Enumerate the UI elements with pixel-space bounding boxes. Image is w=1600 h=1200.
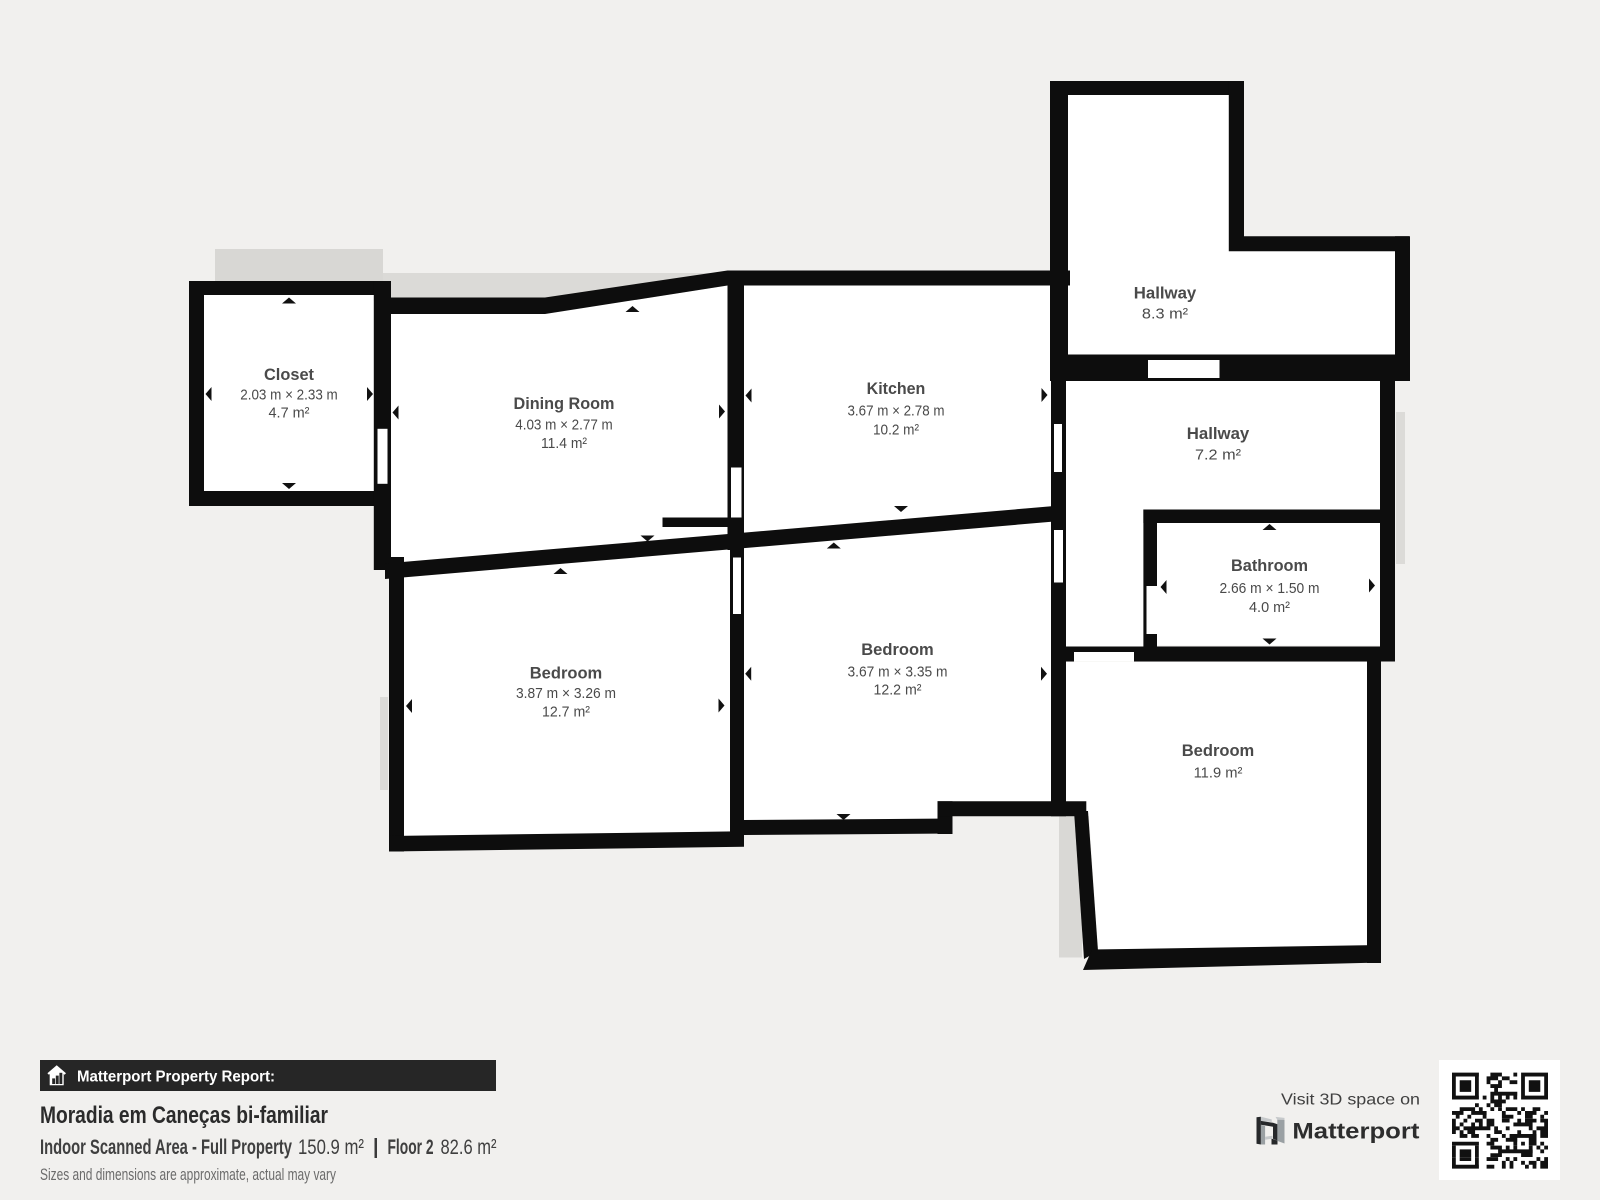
svg-text:Hallway: Hallway bbox=[1187, 424, 1250, 443]
svg-text:Hallway: Hallway bbox=[1134, 284, 1197, 303]
svg-text:11.4 m²: 11.4 m² bbox=[541, 435, 587, 452]
svg-text:Indoor Scanned Area - Full Pro: Indoor Scanned Area - Full Property bbox=[40, 1136, 292, 1159]
svg-text:Bathroom: Bathroom bbox=[1231, 556, 1308, 575]
svg-text:3.67 m × 2.78 m: 3.67 m × 2.78 m bbox=[848, 403, 945, 420]
svg-text:12.2 m²: 12.2 m² bbox=[874, 682, 922, 699]
svg-text:4.03 m × 2.77 m: 4.03 m × 2.77 m bbox=[515, 417, 613, 434]
svg-text:Bedroom: Bedroom bbox=[861, 640, 934, 659]
svg-text:11.9 m²: 11.9 m² bbox=[1194, 765, 1243, 782]
svg-text:3.67 m × 3.35 m: 3.67 m × 3.35 m bbox=[848, 664, 948, 681]
svg-text:4.0 m²: 4.0 m² bbox=[1249, 599, 1290, 616]
svg-text:150.9 m²: 150.9 m² bbox=[298, 1136, 364, 1159]
svg-text:Floor 2: Floor 2 bbox=[388, 1136, 434, 1159]
svg-text:Moradia em Caneças bi-familiar: Moradia em Caneças bi-familiar bbox=[40, 1102, 328, 1129]
svg-text:8.3 m²: 8.3 m² bbox=[1142, 306, 1188, 323]
svg-text:Bedroom: Bedroom bbox=[530, 664, 603, 683]
svg-text:Closet: Closet bbox=[264, 365, 314, 384]
svg-text:4.7 m²: 4.7 m² bbox=[269, 405, 310, 422]
svg-text:Matterport Property Report:: Matterport Property Report: bbox=[77, 1069, 275, 1086]
svg-text:7.2 m²: 7.2 m² bbox=[1195, 447, 1241, 464]
svg-text:Bedroom: Bedroom bbox=[1182, 741, 1255, 760]
svg-text:10.2 m²: 10.2 m² bbox=[873, 422, 919, 439]
svg-text:82.6 m²: 82.6 m² bbox=[441, 1136, 497, 1159]
svg-text:12.7 m²: 12.7 m² bbox=[542, 704, 590, 721]
svg-text:Visit 3D space on: Visit 3D space on bbox=[1281, 1091, 1420, 1108]
svg-text:2.66 m × 1.50 m: 2.66 m × 1.50 m bbox=[1220, 580, 1320, 597]
svg-text:2.03 m × 2.33 m: 2.03 m × 2.33 m bbox=[240, 387, 338, 404]
svg-text:3.87 m × 3.26 m: 3.87 m × 3.26 m bbox=[516, 685, 616, 702]
svg-text:Matterport: Matterport bbox=[1292, 1118, 1420, 1143]
svg-text:Dining Room: Dining Room bbox=[514, 394, 615, 413]
svg-text:Sizes and dimensions are appro: Sizes and dimensions are approximate, ac… bbox=[40, 1166, 337, 1184]
svg-text:Kitchen: Kitchen bbox=[867, 379, 926, 398]
